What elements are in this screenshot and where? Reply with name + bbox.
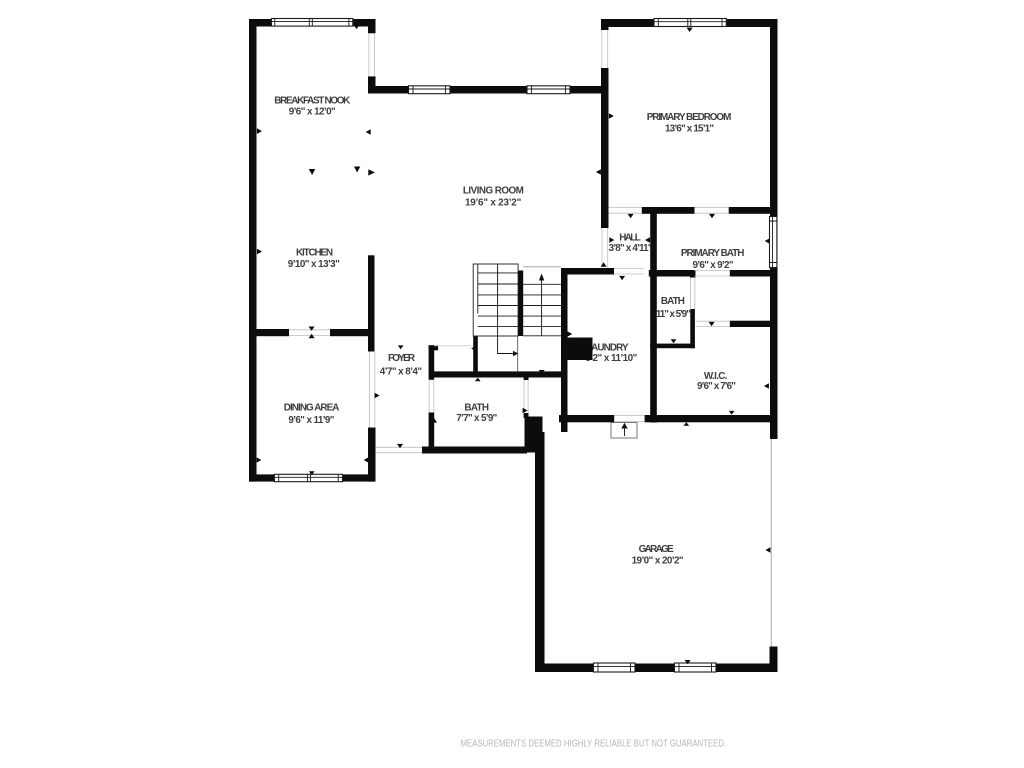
- svg-text:GARAGE: GARAGE: [639, 544, 675, 555]
- svg-text:9’6" x 11’9": 9’6" x 11’9": [288, 415, 334, 426]
- svg-text:BATH: BATH: [464, 402, 489, 413]
- svg-text:LIVING ROOM: LIVING ROOM: [463, 185, 524, 196]
- svg-text:7’7" x 5’9": 7’7" x 5’9": [456, 413, 497, 424]
- svg-text:13’6" x 15’1": 13’6" x 15’1": [665, 123, 714, 134]
- svg-text:DINING AREA: DINING AREA: [284, 402, 340, 413]
- svg-text:MEASUREMENTS DEEMED HIGHLY REL: MEASUREMENTS DEEMED HIGHLY RELIABLE BUT …: [460, 738, 726, 749]
- svg-text:9’6" x 7’6": 9’6" x 7’6": [697, 381, 736, 392]
- svg-text:9’10" x 13’3": 9’10" x 13’3": [288, 259, 340, 270]
- svg-text:FOYER: FOYER: [388, 353, 415, 364]
- svg-text:PRIMARY BEDROOM: PRIMARY BEDROOM: [647, 112, 732, 123]
- svg-text:3’8" x 4’11": 3’8" x 4’11": [609, 243, 653, 254]
- svg-text:PRIMARY BATH: PRIMARY BATH: [681, 248, 745, 259]
- svg-text:HALL: HALL: [619, 232, 641, 243]
- svg-text:4’7" x 8’4": 4’7" x 8’4": [380, 367, 423, 378]
- svg-text:BREAKFAST NOOK: BREAKFAST NOOK: [274, 95, 351, 106]
- svg-text:KITCHEN: KITCHEN: [296, 247, 333, 258]
- svg-text:19’6" x 23’2": 19’6" x 23’2": [465, 197, 522, 208]
- svg-text:19’0" x 20’2": 19’0" x 20’2": [632, 556, 684, 567]
- svg-text:9’6" x 9’2": 9’6" x 9’2": [693, 260, 734, 271]
- svg-text:9’6" x 12’0": 9’6" x 12’0": [289, 107, 336, 118]
- svg-text:5’2" x 11’10": 5’2" x 11’10": [585, 353, 637, 364]
- svg-text:BATH: BATH: [661, 296, 685, 307]
